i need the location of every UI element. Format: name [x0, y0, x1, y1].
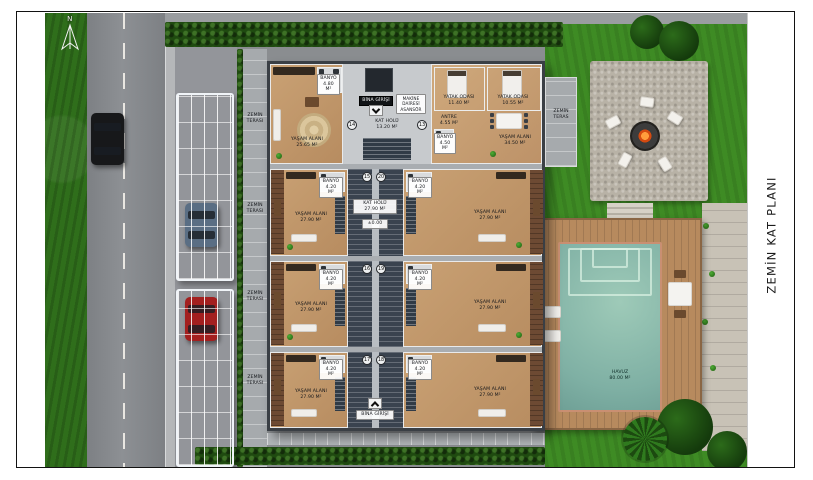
stair-core-row2: 15 20 KAT HOLÜ 27.90 M² ±0.00 [348, 169, 403, 256]
unit13-bath-label: BANYO 4.50 M² [434, 133, 456, 154]
stair-core-row4: 17 18 BİNA GİRİŞİ [348, 352, 403, 428]
unit18-bath-label: BANYO 4.20 M² [408, 359, 432, 380]
unit-number-16: 16 [362, 264, 372, 274]
unit-number-17: 17 [362, 355, 372, 365]
carport-canopy-1 [176, 93, 234, 281]
unit14-bath-label: BANYO 4.80 M² [317, 74, 340, 95]
bedroom2-label: YATAK ODASI 10.55 M² [490, 95, 536, 106]
unit19-living-label: YAŞAM ALANI 27.90 M² [466, 300, 514, 311]
unit15-bath-label: BANYO 4.20 M² [319, 177, 343, 198]
plan-title: ZEMİN KAT PLANI [765, 176, 779, 293]
unit-number-13: 13 [417, 120, 427, 130]
unit17-living-label: YAŞAM ALANI 27.90 M² [289, 389, 333, 400]
hall-label-row2: KAT HOLÜ 27.90 M² [353, 199, 397, 214]
unit-13: YATAK ODASI 11.40 M² YATAK ODASI 10.55 M… [431, 64, 542, 164]
terrace-label-2: ZEMİN TERASI [242, 203, 268, 214]
unit-14: BANYO 4.80 M² YAŞAM ALANI 25.65 M² [270, 64, 343, 164]
entrance-arrow-down-icon [369, 105, 383, 116]
terrace-label-4: ZEMİN TERASI [242, 375, 268, 386]
level-label: ±0.00 [362, 219, 388, 229]
unit-number-18: 18 [376, 355, 386, 365]
unit16-living-label: YAŞAM ALANI 27.90 M² [289, 302, 333, 313]
unit20-bath-label: BANYO 4.20 M² [408, 177, 432, 198]
entrance-bottom-label: BİNA GİRİŞİ [356, 410, 394, 420]
plan-title-strip: ZEMİN KAT PLANI [748, 110, 795, 360]
entrance-arrow-up-icon [368, 398, 382, 409]
unit-15: BANYO 4.20 M² YAŞAM ALANI 27.90 M² [270, 169, 348, 256]
unit-19: BANYO 4.20 M² YAŞAM ALANI 27.90 M² [403, 261, 542, 347]
antre-label: ANTRE 4.55 M² [434, 115, 464, 126]
plan-sheet: ZEMİN TERASI ZEMİN TERASI ZEMİN TERASI Z… [0, 0, 813, 480]
unit13-terrace-label: ZEMİN TERAS [546, 109, 576, 120]
unit-number-15: 15 [362, 172, 372, 182]
unit-18: BANYO 4.20 M² YAŞAM ALANI 27.90 M² [403, 352, 542, 428]
unit-number-19: 19 [376, 264, 386, 274]
unit16-bath-label: BANYO 4.20 M² [319, 269, 343, 290]
black-car [91, 113, 124, 165]
unit-number-20: 20 [376, 172, 386, 182]
stair-core-row3: 16 19 [348, 261, 403, 347]
bedroom1-label: YATAK ODASI 11.40 M² [436, 95, 482, 106]
unit17-bath-label: BANYO 4.20 M² [319, 359, 343, 380]
north-arrow-icon [59, 23, 81, 51]
terrace-label-1: ZEMİN TERASI [242, 113, 268, 124]
hall-label-row1: KAT HOLÜ 13.20 M² [372, 119, 402, 130]
apartment-block: BANYO 4.80 M² YAŞAM ALANI 25.65 M² BİNA … [267, 61, 545, 431]
north-label: N [67, 15, 73, 23]
unit19-bath-label: BANYO 4.20 M² [408, 269, 432, 290]
terrace-label-3: ZEMİN TERASI [242, 291, 268, 302]
unit-17: BANYO 4.20 M² YAŞAM ALANI 27.90 M² [270, 352, 348, 428]
compass: N [53, 15, 87, 55]
unit15-living-label: YAŞAM ALANI 27.90 M² [289, 212, 333, 223]
pool-label: HAVUZ 80.00 M² [600, 370, 640, 381]
stair-core-row1: BİNA GİRİŞİ MAKİNE DAİRESİ ASANSÖR 14 13… [343, 64, 431, 164]
machine-room-label: MAKİNE DAİRESİ ASANSÖR [396, 94, 426, 114]
carport-canopy-2 [176, 289, 234, 467]
unit-number-14: 14 [347, 120, 357, 130]
unit18-living-label: YAŞAM ALANI 27.90 M² [466, 387, 514, 398]
unit13-living-label: YAŞAM ALANI 34.50 M² [492, 135, 538, 146]
unit13-terrace [545, 77, 577, 167]
unit-16: BANYO 4.20 M² YAŞAM ALANI 27.90 M² [270, 261, 348, 347]
unit14-living-label: YAŞAM ALANI 25.65 M² [283, 137, 331, 148]
unit-20: BANYO 4.20 M² YAŞAM ALANI 27.90 M² [403, 169, 542, 256]
unit20-living-label: YAŞAM ALANI 27.90 M² [466, 210, 514, 221]
